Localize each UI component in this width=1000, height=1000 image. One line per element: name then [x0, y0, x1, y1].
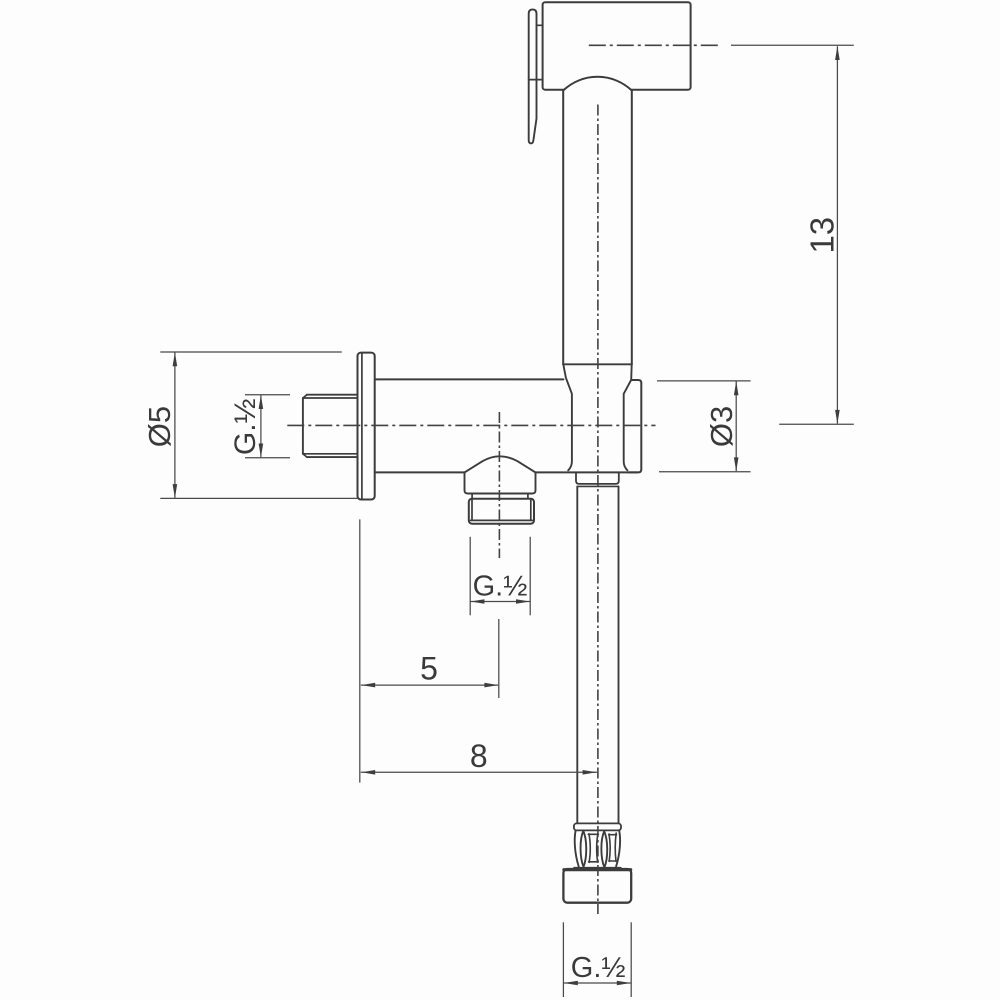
svg-text:Ø3: Ø3	[704, 406, 739, 447]
svg-text:5: 5	[420, 651, 438, 687]
svg-text:G.½: G.½	[473, 570, 528, 602]
svg-text:Ø5: Ø5	[142, 406, 177, 447]
svg-text:G.½: G.½	[571, 952, 626, 984]
svg-text:G.½: G.½	[229, 398, 262, 455]
svg-text:8: 8	[470, 738, 488, 774]
svg-text:13: 13	[804, 217, 841, 254]
